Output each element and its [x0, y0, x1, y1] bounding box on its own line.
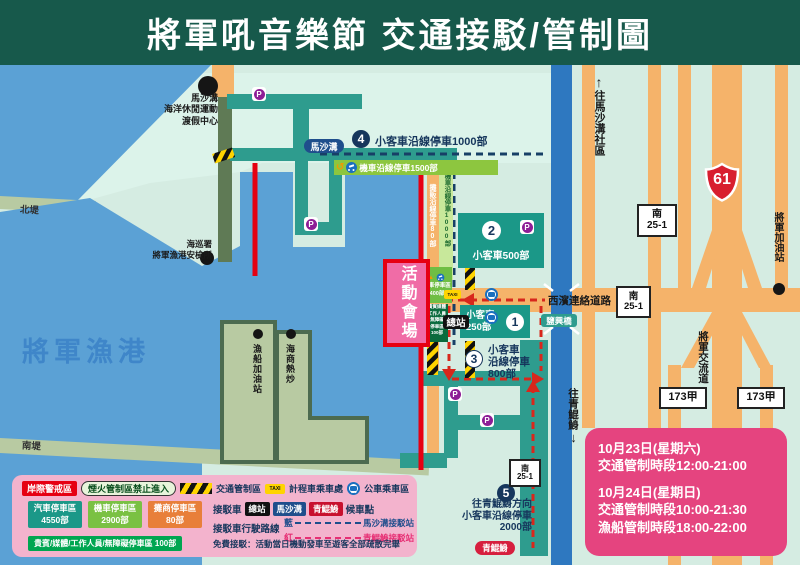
bus-stop-icon	[485, 311, 498, 324]
moto1000-strip: 機車沿線停車1000部	[439, 160, 453, 280]
parking-icon: P	[480, 413, 494, 427]
road-olive-spit	[218, 96, 232, 262]
road-sign-173a-east: 173甲	[737, 387, 785, 409]
taxi-pickup-label: 計程車乘車處	[289, 482, 343, 495]
coast-guard-label: 海巡署 將軍漁港安檢所	[118, 239, 212, 261]
time3: 漁船管制時段18:00-22:00	[598, 519, 787, 536]
seafood-label: 海商熱炒	[284, 344, 297, 384]
fuel-station-label: 漁船加油站	[251, 344, 264, 394]
parking5-label: 往青鯤鯓方向 小客車沿線停車 2000部	[435, 499, 532, 534]
masago-stop-badge: 馬沙溝	[273, 502, 307, 516]
road-sign-25-1-top: 南25-1	[637, 204, 677, 237]
legend-panel: 岸際警戒區 煙火管制區禁止進入 交通管制區 TAXI 計程車乘車處 公車乘車區 …	[12, 475, 417, 557]
coastal-warning-badge: 岸際警戒區	[22, 481, 77, 496]
control-times-box: 10月23日(星期六) 交通管制時段12:00-21:00 10月24日(星期日…	[585, 428, 787, 556]
jiangjun-gas-label: 將軍加油站	[770, 212, 785, 262]
parking2-number: 2	[482, 221, 501, 240]
vip-parking-legend-box: 貴賓/媒體/工作人員/無障礙停車區 100部	[28, 536, 182, 551]
moto-parking-box: 機車停車區 2900部	[88, 501, 142, 528]
qingkunshen-stop-badge: 青鯤鯓	[475, 541, 515, 555]
down-arrow-icon: ↓	[566, 430, 581, 445]
date2: 10月24日(星期日)	[598, 484, 787, 501]
hwy61-number: 61	[704, 171, 740, 189]
south-dike-label: 南堤	[22, 438, 42, 453]
traffic-map-poster: { "title": "將軍吼音樂節 交通接駁/管制圖", "icons": {…	[0, 0, 800, 565]
parking1-number: 1	[506, 313, 524, 331]
route-label: 接駁車行駛路線	[213, 521, 280, 535]
parking-icon: P	[520, 220, 534, 234]
terminal-stop-badge: 總站	[245, 502, 270, 516]
parking-icon: P	[252, 87, 266, 101]
moto1500-banner: ↺ 機車沿線停車1500部	[334, 160, 498, 175]
masago-stop-badge: 馬沙溝	[304, 139, 344, 153]
event-venue-box: 活動會場	[383, 259, 430, 347]
time2: 交通管制時段10:00-21:30	[598, 501, 787, 518]
car-parking-box: 汽車停車區 4550部	[28, 501, 82, 528]
road-sign-25-1-bottom: 南25-1	[509, 459, 541, 487]
to-masago-label: ↑ 往馬沙溝社區	[591, 74, 607, 156]
shuttle-stops-row: 接駁車 總站 馬沙溝 青鯤鯓 候車點	[213, 502, 374, 516]
parking3-number: 3	[465, 350, 483, 368]
road-v2b	[648, 312, 661, 428]
spacer	[598, 474, 787, 484]
legend-row1: 岸際警戒區 煙火管制區禁止進入 交通管制區 TAXI 計程車乘車處 公車乘車區	[22, 481, 409, 496]
loop-arrow-icon: ↺	[336, 163, 344, 173]
road-sign-173a-west: 173甲	[659, 387, 707, 409]
resort-label: 馬沙溝 海洋休閒運動 渡假中心	[128, 93, 218, 127]
fireworks-zone-pill: 煙火管制區禁止進入	[81, 481, 176, 496]
moto1000-label: 機車沿線停車1000部	[441, 173, 451, 247]
motorcycle-icon	[437, 274, 445, 282]
stripe-zone-icon	[180, 483, 212, 494]
xibin-road-label: 西濱連絡道路	[548, 293, 611, 308]
to-qingkunshen-label: 往青鯤鯓 ↓	[566, 388, 581, 445]
moto1500-label: 機車沿線停車1500部	[359, 162, 437, 174]
parking2-label: 小客車500部	[458, 247, 544, 262]
free-shuttle-note: 免費接駁：活動當日機動發車至遊客全部疏散完畢	[213, 538, 400, 550]
blue-dash-swatch	[295, 522, 361, 524]
time1: 交通管制時段12:00-21:00	[598, 457, 787, 474]
up-arrow-icon: ↑	[591, 74, 607, 90]
page-title: 將軍吼音樂節 交通接駁/管制圖	[147, 8, 653, 57]
date1: 10月23日(星期六)	[598, 440, 787, 457]
harbor-label: 將軍漁港	[22, 330, 150, 369]
parking4-number: 4	[352, 130, 370, 148]
parking-icon: P	[448, 387, 462, 401]
north-dike-label: 北堤	[20, 202, 40, 217]
pier-west	[222, 322, 275, 462]
hwy61-shield: 61	[704, 162, 740, 202]
road-sign-25-1-mid: 南25-1	[616, 286, 651, 318]
parking4-label: 小客車沿線停車1000部	[375, 133, 487, 149]
road-v2	[648, 65, 661, 288]
bus-stop-icon	[485, 288, 498, 301]
title-bar: 將軍吼音樂節 交通接駁/管制圖	[0, 0, 800, 65]
road-v1b	[582, 312, 595, 428]
parking-icon: P	[304, 217, 318, 231]
jiangjun-interchange-label: 將軍交流道	[696, 331, 711, 384]
parking3-label: 小客車 沿線停車 800部	[488, 344, 530, 380]
qks-stop-badge: 青鯤鯓	[309, 502, 343, 516]
terminal-stop-badge: 總站	[443, 315, 469, 329]
event-venue-label: 活動會場	[395, 265, 419, 341]
vendor-parking-box: 攤商停車區 80部	[148, 501, 202, 528]
taxi-badge: TAXI	[265, 484, 285, 494]
taxi-badge: TAXI	[444, 290, 461, 299]
motorcycle-icon	[346, 162, 357, 173]
route-blue-line: 藍 馬沙溝接駁站	[284, 516, 414, 529]
bus-stop-icon	[347, 482, 360, 495]
yanxing-bridge-badge: 鹽興橋	[541, 314, 577, 327]
parking2-box: 2 小客車500部 P	[458, 213, 544, 268]
bus-area-label: 公車乘車區	[364, 482, 409, 495]
road-v3	[678, 65, 691, 288]
traffic-zone-label: 交通管制區	[216, 482, 261, 495]
